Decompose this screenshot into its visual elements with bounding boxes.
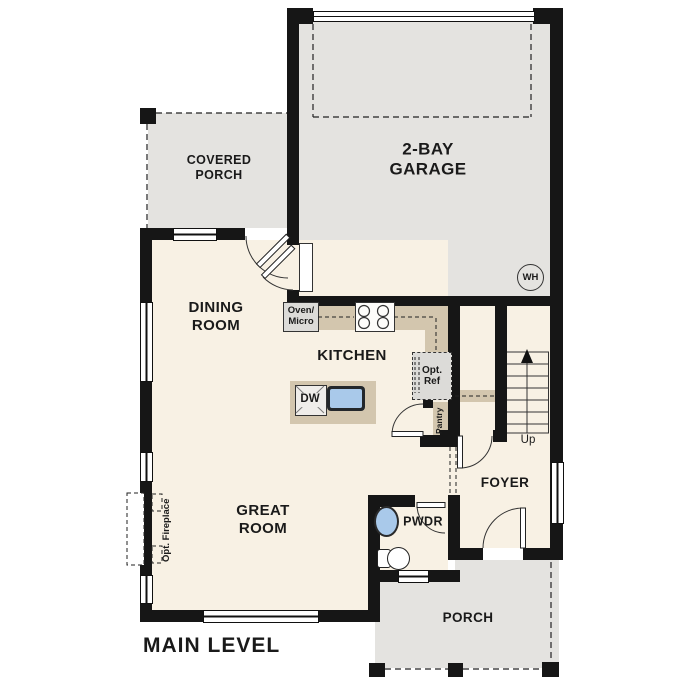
wall-segment <box>523 548 563 560</box>
great-room-label-line: GREAT <box>236 502 289 520</box>
dining-room-label: DINING ROOM <box>189 299 244 335</box>
wall-segment <box>368 495 415 507</box>
window <box>551 462 564 524</box>
water-heater-label: WH <box>523 272 539 283</box>
wall-segment <box>140 228 152 622</box>
garage-door-recess <box>299 243 313 292</box>
water-heater-symbol: WH <box>517 264 544 291</box>
pantry-label: Pantry <box>434 402 448 440</box>
garage-label: 2-BAY GARAGE <box>389 140 466 181</box>
window <box>140 575 153 604</box>
plan-title-text: MAIN LEVEL <box>143 634 280 657</box>
kitchen-label-line: KITCHEN <box>317 347 386 365</box>
foyer-label: FOYER <box>481 475 530 491</box>
garage-label-line: 2-BAY <box>389 140 466 160</box>
optional-refrigerator: Opt. Ref <box>412 352 452 400</box>
covered-porch-label-line: COVERED <box>187 153 252 168</box>
porch-post <box>542 662 559 677</box>
opening-floor <box>448 447 460 497</box>
cooktop <box>355 302 395 332</box>
opt-ref-label: Ref <box>424 376 440 388</box>
oven-micro-label: Micro <box>288 317 313 328</box>
porch-post <box>140 108 156 124</box>
hallway-floor <box>455 306 495 440</box>
window <box>398 570 429 583</box>
optional-fireplace-label-line: Opt. Fireplace <box>161 498 172 561</box>
wall-segment <box>368 570 398 582</box>
optional-fireplace-label: Opt. Fireplace <box>161 488 174 572</box>
up-label: Up <box>521 434 536 448</box>
stairwell-floor <box>507 306 550 435</box>
covered-porch-label: COVERED PORCH <box>187 153 252 183</box>
powder-sink <box>374 506 399 537</box>
foyer-label-line: FOYER <box>481 475 530 491</box>
up-label-line: Up <box>521 434 536 448</box>
porch-post <box>369 663 385 677</box>
toilet-bowl <box>387 547 410 570</box>
porch-label: PORCH <box>443 610 494 626</box>
wall-segment <box>495 306 507 442</box>
window <box>140 302 153 382</box>
floor-plan: Oven/ Micro Opt. Ref WH <box>0 0 687 687</box>
dishwasher-label-line: DW <box>300 393 319 407</box>
window <box>173 228 217 241</box>
powder-room-label: PWDR <box>403 515 443 530</box>
wall-segment <box>427 570 460 582</box>
window <box>140 452 153 482</box>
wall-segment <box>290 228 299 240</box>
wall-segment <box>287 296 563 306</box>
kitchen-sink-basin <box>330 389 362 408</box>
kitchen-counter <box>425 330 450 352</box>
covered-porch-label-line: PORCH <box>187 168 252 183</box>
pantry-label-line: Pantry <box>434 408 444 434</box>
garage-door <box>313 11 535 22</box>
wall-segment <box>448 548 483 560</box>
great-room-label-line: ROOM <box>236 520 289 538</box>
wall-segment <box>215 228 245 240</box>
window <box>203 610 319 623</box>
porch-post <box>448 663 463 677</box>
great-room-label: GREAT ROOM <box>236 502 289 538</box>
oven-micro-appliance: Oven/ Micro <box>283 302 319 332</box>
plan-title: MAIN LEVEL <box>143 634 280 658</box>
powder-room-label-line: PWDR <box>403 515 443 530</box>
kitchen-label: KITCHEN <box>317 347 386 365</box>
closet-shelf <box>455 390 495 402</box>
porch-label-line: PORCH <box>443 610 494 626</box>
opt-ref-label: Opt. <box>422 365 442 377</box>
dishwasher-label: DW <box>299 393 320 407</box>
dining-room-label-line: DINING <box>189 299 244 317</box>
wall-segment <box>287 8 299 245</box>
garage-label-line: GARAGE <box>389 160 466 180</box>
dining-room-label-line: ROOM <box>189 317 244 335</box>
